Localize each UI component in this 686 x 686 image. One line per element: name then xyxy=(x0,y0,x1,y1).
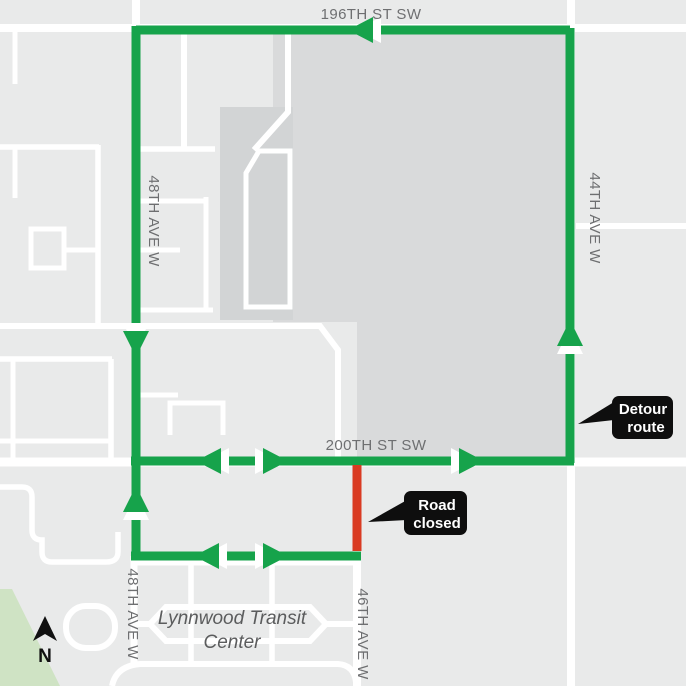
detour-callout-line1: Detour xyxy=(619,401,667,418)
detour-map: 196TH ST SW 200TH ST SW 48TH AVE W 44TH … xyxy=(0,0,686,686)
label-200th-st-sw: 200TH ST SW xyxy=(326,437,427,454)
label-196th-st-sw: 196TH ST SW xyxy=(321,6,422,23)
label-lynnwood-transit-line2: Center xyxy=(203,632,261,653)
label-lynnwood-transit-line1: Lynnwood Transit xyxy=(158,608,307,629)
parcel-strip xyxy=(220,107,293,320)
label-48th-ave-w-top: 48TH AVE W xyxy=(145,175,162,267)
label-46th-ave-w: 46TH AVE W xyxy=(354,588,371,680)
closed-callout-line2: closed xyxy=(413,515,461,532)
closed-callout-line1: Road xyxy=(418,497,456,514)
label-44th-ave-w: 44TH AVE W xyxy=(586,172,603,264)
detour-callout-line2: route xyxy=(627,419,665,436)
compass-n-label: N xyxy=(38,646,52,667)
label-48th-ave-w-bottom: 48TH AVE W xyxy=(124,568,141,660)
map-canvas: 196TH ST SW 200TH ST SW 48TH AVE W 44TH … xyxy=(0,0,686,686)
